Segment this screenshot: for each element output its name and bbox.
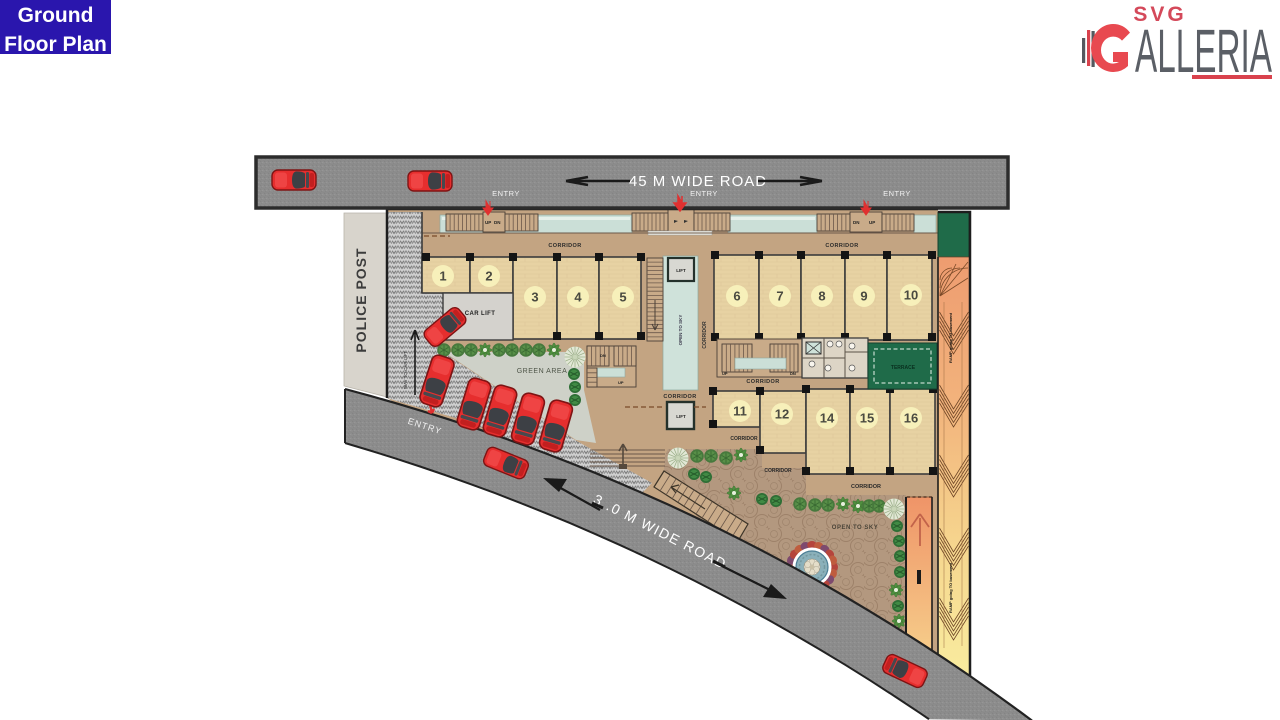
svg-text:12: 12 (775, 407, 789, 422)
svg-text:CORRIDOR: CORRIDOR (548, 243, 581, 249)
svg-text:RAMP going TO basement: RAMP going TO basement (948, 562, 953, 613)
svg-text:POLICE POST: POLICE POST (353, 247, 369, 352)
svg-text:TERRACE: TERRACE (891, 365, 916, 371)
svg-text:7: 7 (776, 289, 783, 304)
svg-text:UP: UP (485, 220, 491, 225)
svg-text:DN: DN (853, 220, 860, 225)
svg-text:ENTRY: ENTRY (492, 189, 520, 198)
svg-text:10: 10 (904, 288, 918, 303)
svg-text:UP: UP (722, 371, 728, 376)
svg-text:CORRIDOR: CORRIDOR (702, 321, 708, 349)
svg-text:ALLERIA: ALLERIA (1135, 17, 1272, 85)
svg-text:OPEN TO SKY: OPEN TO SKY (832, 525, 878, 531)
svg-text:6: 6 (733, 289, 740, 304)
svg-text:UP: UP (618, 380, 624, 385)
svg-text:CORRIDOR: CORRIDOR (825, 243, 858, 249)
svg-text:CORRIDOR: CORRIDOR (730, 436, 758, 442)
svg-text:2: 2 (485, 269, 492, 284)
svg-text:1: 1 (439, 269, 446, 284)
svg-text:DN: DN (494, 220, 501, 225)
svg-text:3: 3 (531, 290, 538, 305)
svg-text:CORRIDOR: CORRIDOR (851, 484, 881, 490)
svg-text:UP: UP (869, 220, 875, 225)
svg-text:14: 14 (820, 411, 835, 426)
svg-text:9: 9 (860, 289, 867, 304)
svg-text:CORRIDOR: CORRIDOR (764, 468, 792, 474)
svg-text:8: 8 (818, 289, 825, 304)
svg-text:ENTRY: ENTRY (690, 189, 718, 198)
svg-text:RAMP going TO basement: RAMP going TO basement (948, 312, 953, 363)
svg-text:CORRIDOR: CORRIDOR (663, 394, 696, 400)
svg-text:CAR LIFT: CAR LIFT (465, 311, 496, 317)
svg-text:5: 5 (619, 290, 626, 305)
svg-text:15: 15 (860, 411, 874, 426)
svg-text:CORRIDOR: CORRIDOR (746, 379, 779, 385)
svg-text:16: 16 (904, 411, 918, 426)
svg-text:11: 11 (733, 404, 747, 419)
svg-text:DN: DN (600, 353, 606, 358)
svg-text:LIFT: LIFT (676, 414, 686, 419)
svg-text:DN: DN (790, 371, 796, 376)
svg-text:4: 4 (574, 290, 582, 305)
svg-text:ENTRY: ENTRY (883, 189, 911, 198)
svg-text:GREEN AREA: GREEN AREA (517, 368, 568, 375)
svg-text:OPEN TO SKY: OPEN TO SKY (678, 315, 683, 346)
svg-text:LIFT: LIFT (676, 268, 686, 273)
svg-text:45 M WIDE ROAD: 45 M WIDE ROAD (629, 173, 767, 190)
svg-text:WAY TO CAR LIFT: WAY TO CAR LIFT (403, 351, 408, 390)
